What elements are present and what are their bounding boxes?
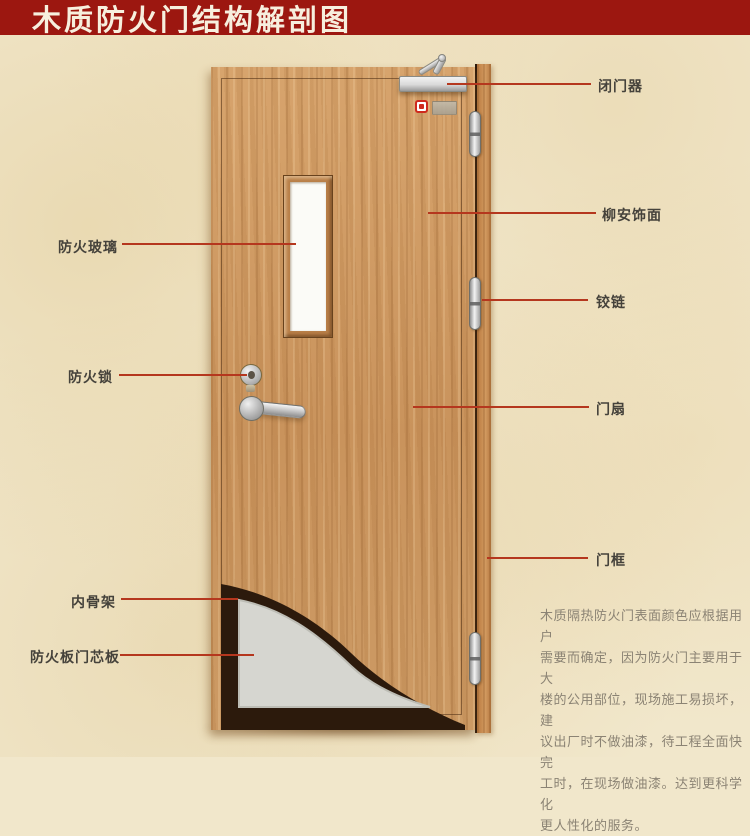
keyhole-icon [248,371,255,379]
door-handle-rose [239,396,264,421]
pointer-line-door-leaf [413,406,589,408]
pointer-line-lauan-veneer [428,212,596,214]
label-fire-board-core: 防火板门芯板 [30,647,120,667]
hinge-top [469,111,481,157]
hinge-bottom [469,632,481,685]
door-closer-knuckle [438,54,446,62]
label-fire-lock: 防火锁 [68,367,113,387]
label-lauan-veneer: 柳安饰面 [602,205,662,225]
description-line: 楼的公用部位，现场施工易损坏，建 [540,689,750,731]
title-banner: 木质防火门结构解剖图 [0,0,750,35]
lock-escutcheon [246,385,255,392]
hinge-middle [469,277,481,330]
label-door-leaf: 门扇 [596,399,626,419]
description-line: 木质隔热防火门表面颜色应根据用户 [540,605,750,647]
pointer-line-fire-lock [119,374,247,376]
pointer-line-fire-glass [122,243,296,245]
pointer-line-door-frame [487,557,588,559]
label-fire-glass: 防火玻璃 [58,237,118,257]
page-title: 木质防火门结构解剖图 [0,0,352,39]
label-inner-skeleton: 内骨架 [71,592,116,612]
description-line: 议出厂时不做油漆，待工程全面快完 [540,731,750,773]
description-line: 需要而确定，因为防火门主要用于大 [540,647,750,689]
label-hinge: 铰链 [596,292,626,312]
glass-window-frame [283,175,333,338]
diagram-canvas: 木质防火门结构解剖图 [0,0,750,757]
pointer-line-hinge [482,299,588,301]
label-door-closer: 闭门器 [598,76,643,96]
fire-sign-emblem-icon [419,104,424,109]
pointer-line-core-board [120,654,254,656]
certification-plate [432,101,457,115]
fire-rating-sign [415,100,428,113]
label-door-frame: 门框 [596,550,626,570]
description-line: 更人性化的服务。 [540,815,750,836]
core-board-region [239,600,430,707]
description-paragraph: 木质隔热防火门表面颜色应根据用户 需要而确定，因为防火门主要用于大 楼的公用部位… [540,605,750,836]
pointer-line-door-closer [447,83,591,85]
description-line: 工时，在现场做油漆。达到更科学化 [540,773,750,815]
fire-glass-pane [290,182,326,331]
pointer-line-inner-skeleton [121,598,238,600]
